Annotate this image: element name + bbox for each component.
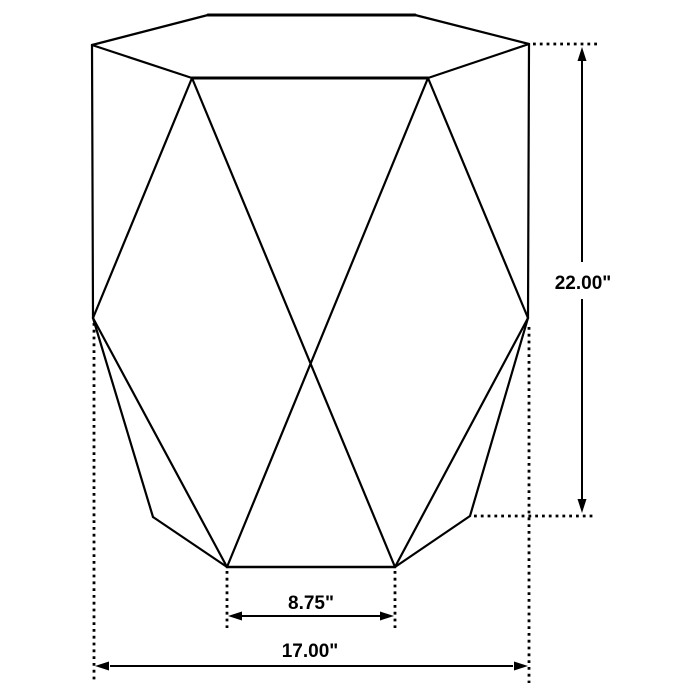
dimension-base-front-width: 8.75" [228, 593, 394, 621]
right-side-edge [528, 44, 529, 318]
arrow-down-icon [578, 499, 587, 513]
dimension-diagram: 22.00" 8.75" 17.00" [0, 0, 700, 700]
base-width-dimension-label: 8.75" [288, 593, 334, 614]
left-side-edge [92, 45, 93, 318]
base-left-outer-edge [93, 318, 153, 517]
facet-line [428, 78, 528, 318]
tabletop-back-right-edge [415, 15, 529, 44]
tabletop-front-left-edge [92, 45, 192, 78]
extension-lines [94, 44, 598, 683]
arrow-right-icon [380, 612, 394, 621]
dimension-diagram-svg: 22.00" 8.75" 17.00" [0, 0, 700, 700]
facet-line [93, 78, 192, 318]
arrow-left-icon [228, 612, 242, 621]
facet-line [227, 78, 428, 567]
base-left-outer-edge [153, 517, 227, 567]
overall-width-dimension-label: 17.00" [282, 641, 339, 662]
arrow-left-icon [95, 662, 109, 671]
table-drawing [92, 15, 529, 567]
arrow-up-icon [578, 47, 587, 61]
arrow-right-icon [514, 662, 528, 671]
height-dimension-label: 22.00" [555, 273, 612, 294]
base-right-outer-edge [395, 516, 470, 567]
dimension-overall-width: 17.00" [95, 641, 528, 671]
facet-line [395, 318, 528, 567]
facet-line [192, 78, 395, 567]
tabletop-front-right-edge [428, 44, 529, 78]
facet-line [93, 318, 227, 567]
base-right-outer-edge [470, 318, 528, 516]
dimension-height: 22.00" [555, 47, 612, 513]
tabletop-back-left-edge [92, 15, 208, 45]
